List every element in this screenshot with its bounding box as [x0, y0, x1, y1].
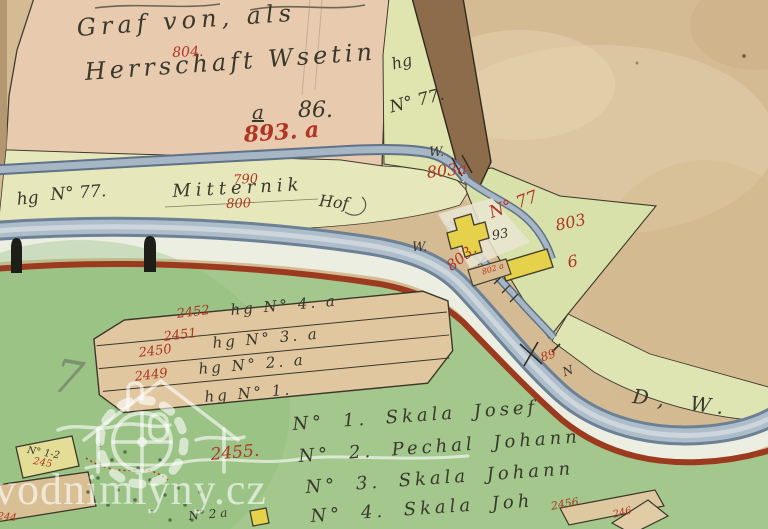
parcel-number-803a: 803a: [426, 161, 468, 181]
parcel-number-804: 804.: [172, 45, 204, 60]
parcel-number-2450: 2450: [138, 343, 172, 360]
w-mark-upper: W.: [429, 146, 444, 159]
parcel-number-2455: 2455.: [210, 443, 260, 464]
building-number-93: 93: [491, 227, 510, 243]
hg-upper: hg: [390, 52, 414, 72]
parcel-number-800: 800: [226, 197, 251, 211]
watermark-text: vodnimlyny.cz: [0, 468, 267, 512]
mill-name-suffix: Hof: [318, 193, 349, 212]
mill-row-number: N° 77.: [50, 183, 107, 204]
w-mark-mill: W.: [412, 241, 427, 254]
parcel-number-2449: 2449: [134, 367, 168, 384]
mill-row-hg: hg: [16, 190, 40, 209]
parcel-number-2452: 2452: [176, 304, 210, 321]
area-letter-a: a: [252, 102, 264, 122]
parcel-number-893: 893. a: [243, 119, 320, 146]
cadastral-map: Graf von, als Herrschaft Wsetin a 86. 80…: [0, 0, 768, 529]
